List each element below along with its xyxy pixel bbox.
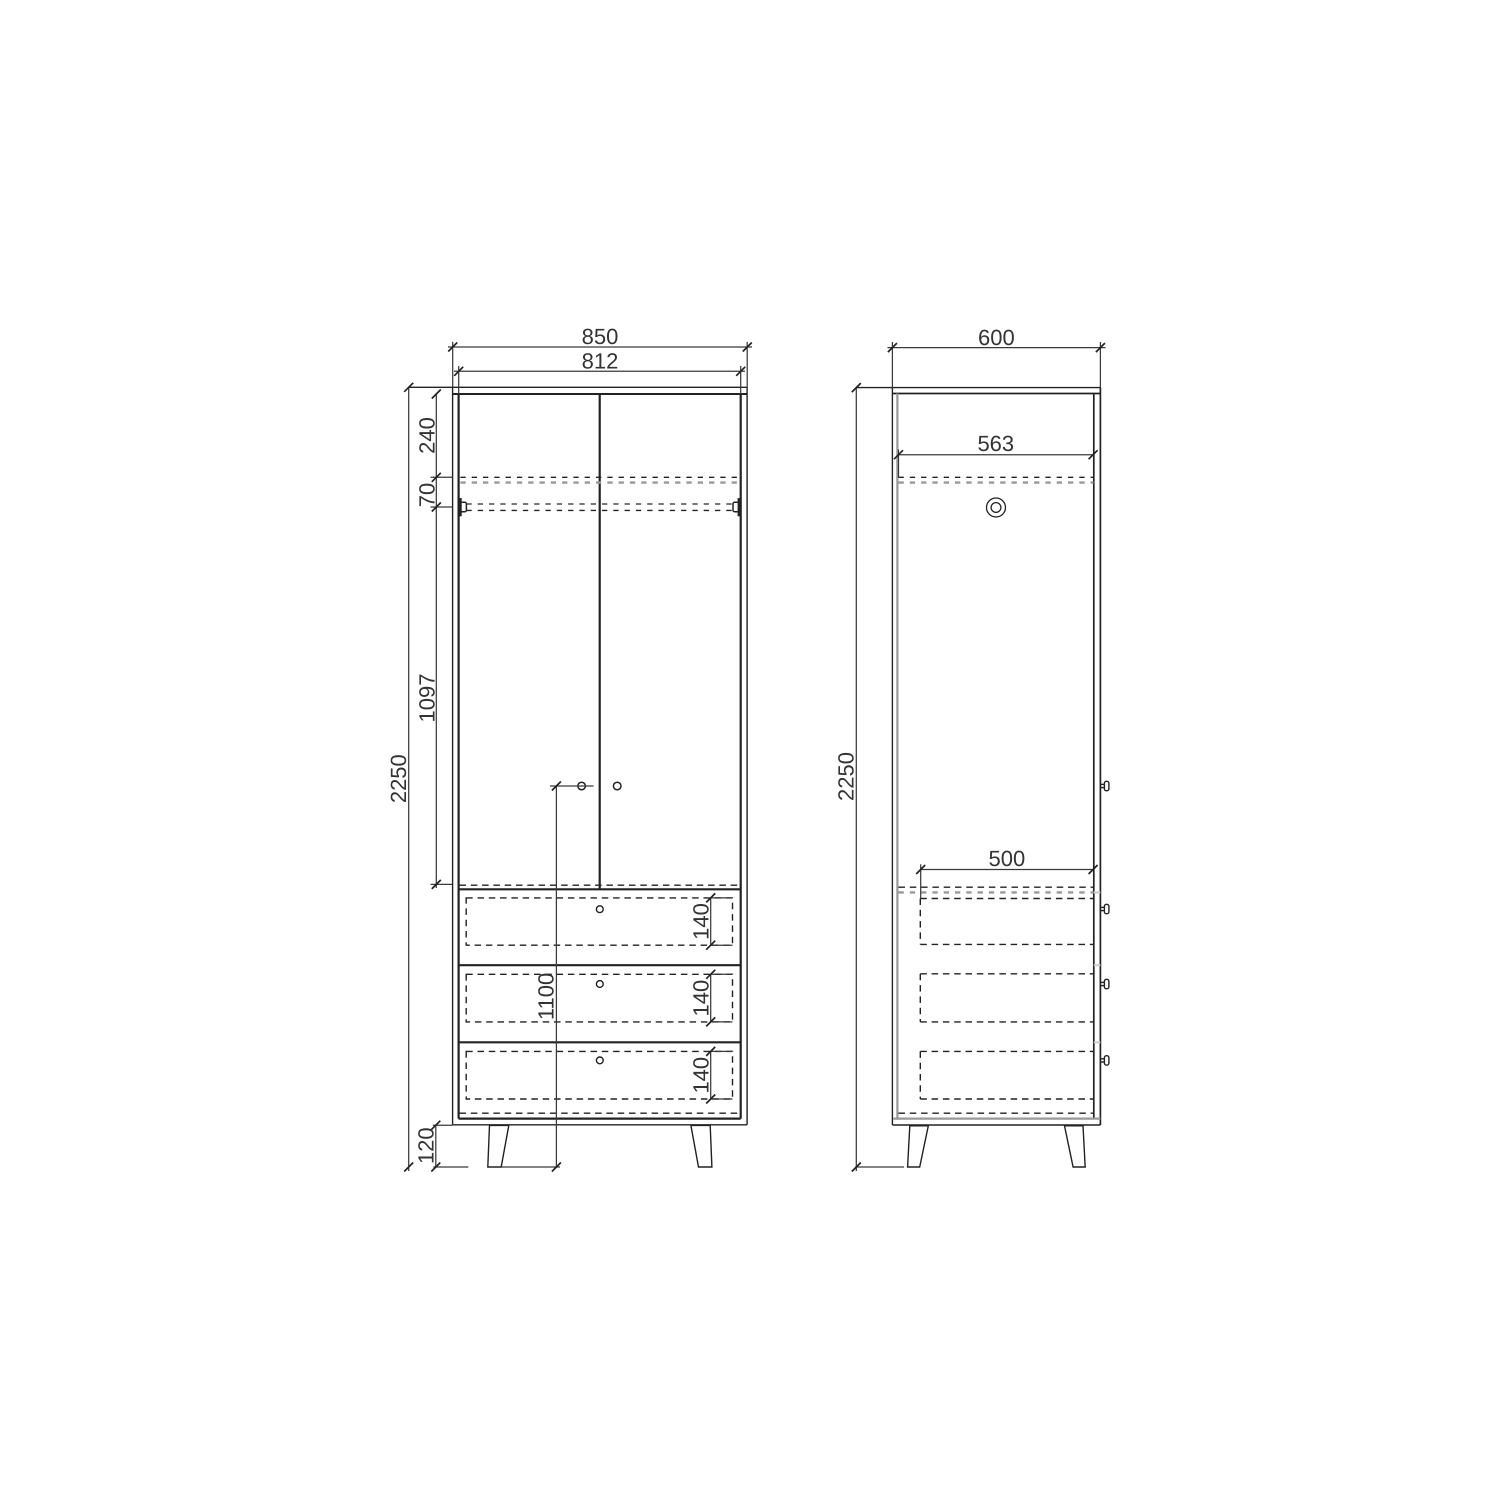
svg-text:140: 140 xyxy=(689,1057,714,1094)
svg-text:120: 120 xyxy=(413,1127,438,1164)
svg-text:140: 140 xyxy=(689,980,714,1017)
svg-text:1097: 1097 xyxy=(414,674,439,723)
svg-text:2250: 2250 xyxy=(833,752,858,801)
svg-text:500: 500 xyxy=(989,846,1026,871)
svg-text:563: 563 xyxy=(977,431,1014,456)
svg-text:240: 240 xyxy=(414,417,439,454)
svg-text:140: 140 xyxy=(689,903,714,940)
svg-text:850: 850 xyxy=(582,324,619,349)
svg-text:1100: 1100 xyxy=(534,973,559,1020)
svg-text:600: 600 xyxy=(978,325,1015,350)
svg-text:70: 70 xyxy=(414,483,439,507)
svg-text:2250: 2250 xyxy=(386,754,411,803)
svg-text:812: 812 xyxy=(582,349,619,374)
